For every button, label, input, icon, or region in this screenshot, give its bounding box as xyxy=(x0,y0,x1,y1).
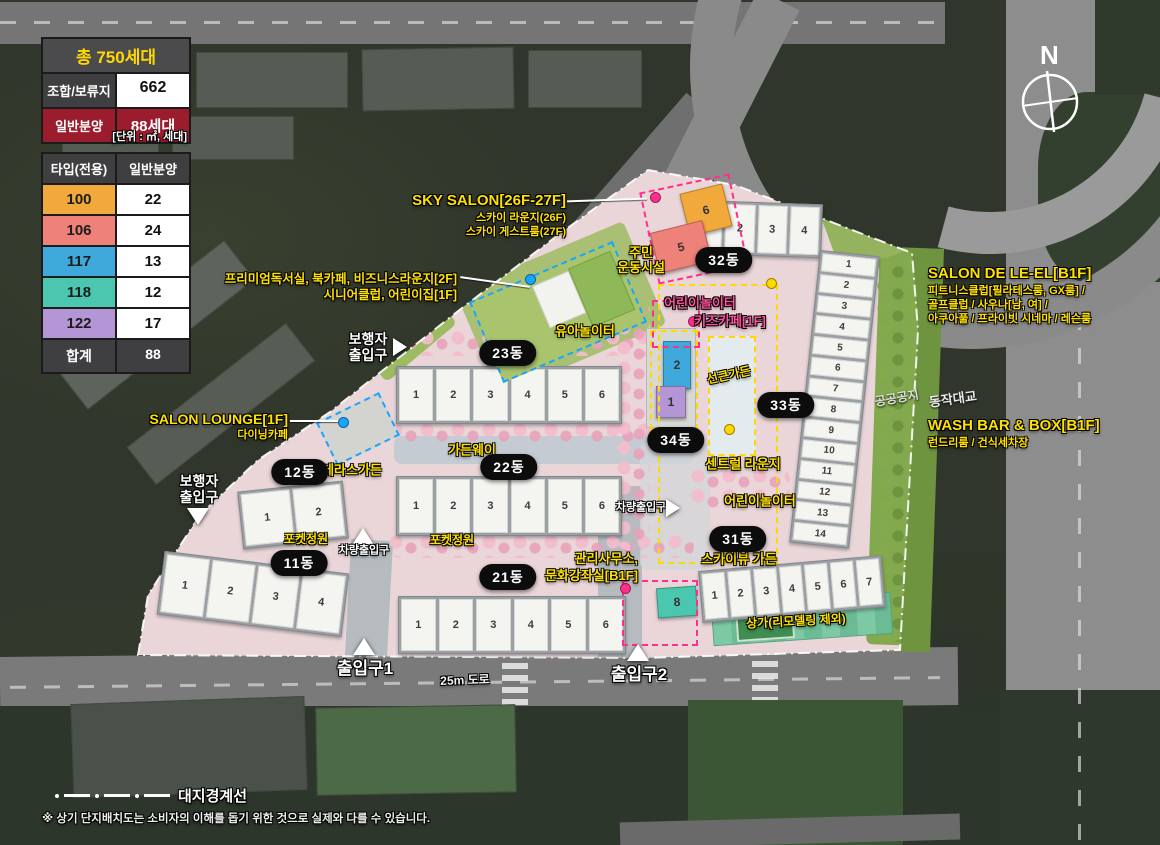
unit: 5 xyxy=(812,336,868,359)
bg-building xyxy=(315,704,517,795)
col-header: 타입(전용) xyxy=(43,154,115,183)
unit: 4 xyxy=(779,565,806,613)
callout-line: 런드리룸 / 건식세차장 xyxy=(928,436,1100,450)
unit: 2 xyxy=(436,369,470,421)
unit: 6 xyxy=(585,479,619,533)
unit: 5 xyxy=(548,479,582,533)
unit: 5 xyxy=(548,369,582,421)
pill-34: 34동 xyxy=(647,427,704,453)
entrance-arrow xyxy=(666,499,680,517)
unit: 6 xyxy=(589,599,624,651)
callout-line: 관리사무소, xyxy=(545,551,638,568)
type-table: 타입(전용) 일반분양 100 22 106 24 117 13 118 12 … xyxy=(41,152,191,374)
callout-salon-de-leel: SALON DE LE-EL[B1F] 피트니스클럽[필라테스룸, GX룸] /… xyxy=(928,264,1091,326)
label-skyview-garden: 스카이뷰 가든 xyxy=(701,553,776,568)
pill-23: 23동 xyxy=(479,340,536,366)
callout-premium: 프리미엄독서실, 북카페, 비즈니스라운지[2F] 시니어클럽, 어린이집[1F… xyxy=(225,271,457,304)
callout-line: 프리미엄독서실, 북카페, 비즈니스라운지[2F] xyxy=(225,271,457,287)
management-outline xyxy=(622,580,698,646)
callout-line: 시니어클럽, 어린이집[1F] xyxy=(225,287,457,303)
callout-title: SKY SALON[26F-27F] xyxy=(412,191,566,211)
col-header: 일반분양 xyxy=(117,154,189,183)
building-22: 1 2 3 4 5 6 xyxy=(396,476,622,536)
boundary-line-sample xyxy=(55,794,170,798)
unit: 3 xyxy=(473,479,507,533)
count-cell: 22 xyxy=(117,185,189,214)
crosswalk xyxy=(502,655,528,705)
unit: 4 xyxy=(789,206,820,255)
unit: 2 xyxy=(727,570,754,618)
unit: 2 xyxy=(206,560,255,623)
label-central-lounge: 센트럴 라운지 xyxy=(705,458,780,473)
unit: 6 xyxy=(810,357,866,380)
unit: 12 xyxy=(797,481,853,504)
unit: 4 xyxy=(514,599,549,651)
boundary-label: 대지경계선 xyxy=(178,785,247,806)
disclaimer-text: ※ 상기 단지배치도는 소비자의 이해를 돕기 위한 것으로 실제와 다를 수 … xyxy=(42,810,430,826)
unit: 3 xyxy=(816,295,872,318)
entrance-arrow xyxy=(627,644,649,661)
label-kids-cafe: 키즈카페[1F] xyxy=(694,315,766,330)
unit: 7 xyxy=(808,377,864,400)
unit: 4 xyxy=(511,479,545,533)
pill-11: 11동 xyxy=(271,550,328,576)
type-cell: 118 xyxy=(43,278,115,307)
callout-line: 아쿠아풀 / 프라이빗 시네마 / 레슨룸 xyxy=(928,312,1091,326)
marker-dot xyxy=(338,417,349,428)
pill-33: 33동 xyxy=(757,392,814,418)
callout-title: WASH BAR & BOX[B1F] xyxy=(928,416,1100,436)
pill-32: 32동 xyxy=(695,247,752,273)
entrance-pedestrian-1: 보행자 출입구 xyxy=(349,331,388,363)
count-cell: 17 xyxy=(117,309,189,338)
label-pocket-garden-2: 포켓정원 xyxy=(430,534,474,548)
callout-line: 골프클럽 / 사우나[남, 여] / xyxy=(928,298,1091,312)
right-road-lane xyxy=(1078,300,1081,840)
entrance-vehicle-1: 차량출입구 xyxy=(339,545,390,558)
type-cell: 117 xyxy=(43,247,115,276)
label-line: 출입구 xyxy=(180,489,219,505)
pill-22: 22동 xyxy=(480,454,537,480)
label-pocket-garden-1: 포켓정원 xyxy=(284,533,328,547)
label-line: 보행자 xyxy=(349,331,388,347)
callout-line: 다이닝카페 xyxy=(150,428,288,442)
unit: 1 xyxy=(821,253,877,276)
count-cell: 13 xyxy=(117,247,189,276)
unit: 1 xyxy=(399,369,433,421)
label-line: 보행자 xyxy=(180,473,219,489)
pill-21: 21동 xyxy=(479,564,536,590)
unit: 4 xyxy=(296,571,345,634)
unit: 14 xyxy=(793,522,849,545)
bg-building xyxy=(361,47,514,112)
unit: 5 xyxy=(804,563,831,611)
unit: 3 xyxy=(476,599,511,651)
site-plan-map: 1 2 3 4 5 6 1 2 3 4 5 6 1 2 3 4 5 6 1 2 … xyxy=(0,0,1160,845)
marker-dot xyxy=(724,424,735,435)
label-25m-road: 25m 도로 xyxy=(440,673,490,689)
entrance-arrow xyxy=(187,508,209,525)
row-value: 662 xyxy=(117,74,189,107)
marker-dot xyxy=(766,278,777,289)
label-kids-playground-pink: 어린이놀이터 xyxy=(664,297,736,312)
unit: 2 xyxy=(819,274,875,297)
label-line: 주민 xyxy=(629,245,653,260)
compass-north-icon: N xyxy=(1008,40,1092,140)
marker-dot xyxy=(650,192,661,203)
label-terrace-garden: 테라스가든 xyxy=(322,464,382,479)
unit: 3 xyxy=(757,205,788,254)
crosswalk xyxy=(752,653,778,703)
bg-building xyxy=(528,50,642,108)
type-cell: 122 xyxy=(43,309,115,338)
row-label: 조합/보류지 xyxy=(43,74,115,107)
unit: 2 xyxy=(439,599,474,651)
unit: 1 xyxy=(401,599,436,651)
callout-line: 피트니스클럽[필라테스룸, GX룸] / xyxy=(928,284,1091,298)
marker-dot xyxy=(525,274,536,285)
entrance-gate-1: 출입구1 xyxy=(337,659,393,679)
callout-line: 스카이 게스트룸(27F) xyxy=(412,225,566,239)
boundary-legend: 대지경계선 xyxy=(55,785,247,806)
building-21: 1 2 3 4 5 6 xyxy=(398,596,626,654)
total-label: 합계 xyxy=(43,340,115,372)
entrance-pedestrian-2: 보행자 출입구 xyxy=(180,473,219,505)
unit: 1 xyxy=(701,572,728,620)
unit: 1 xyxy=(160,554,209,617)
leader-line xyxy=(290,420,338,422)
callout-management: 관리사무소, 문화강좌실[B1F] xyxy=(545,551,638,585)
unit: 6 xyxy=(585,369,619,421)
pill-12: 12동 xyxy=(271,459,328,485)
callout-line: 스카이 라운지(26F) xyxy=(412,211,566,225)
callout-wash-bar: WASH BAR & BOX[B1F] 런드리룸 / 건식세차장 xyxy=(928,416,1100,450)
unit: 9 xyxy=(803,419,859,442)
callout-salon-lounge: SALON LOUNGE[1F] 다이닝카페 xyxy=(150,410,288,442)
compass-n: N xyxy=(1040,40,1059,70)
label-toddler-playground: 유아놀이터 xyxy=(555,325,615,340)
unit: 6 xyxy=(830,561,857,609)
label-line: 운동시설 xyxy=(617,260,665,275)
unit: 5 xyxy=(551,599,586,651)
entrance-arrow xyxy=(352,528,374,545)
unit: 2 xyxy=(436,479,470,533)
label-kids-playground-yellow: 어린이놀이터 xyxy=(724,495,796,510)
type-cell: 106 xyxy=(43,216,115,245)
unit: 1 xyxy=(399,479,433,533)
count-cell: 24 xyxy=(117,216,189,245)
count-cell: 12 xyxy=(117,278,189,307)
bg-building xyxy=(196,52,348,108)
entrance-arrow xyxy=(353,638,375,655)
total-count: 88 xyxy=(117,340,189,372)
label-line: 출입구 xyxy=(349,347,388,363)
callout-title: SALON DE LE-EL[B1F] xyxy=(928,264,1091,284)
unit-note: [단위 : ㎡, 세대] xyxy=(41,128,187,144)
total-households: 총 750세대 xyxy=(43,39,189,72)
entrance-vehicle-2: 차량출입구 xyxy=(616,502,667,515)
type-cell: 100 xyxy=(43,185,115,214)
callout-sky-salon: SKY SALON[26F-27F] 스카이 라운지(26F) 스카이 게스트룸… xyxy=(412,191,566,239)
unit: 4 xyxy=(814,315,870,338)
callout-line: 문화강좌실[B1F] xyxy=(545,568,638,585)
pill-31: 31동 xyxy=(709,526,766,552)
callout-title: SALON LOUNGE[1F] xyxy=(150,410,288,428)
bg-building xyxy=(70,696,307,798)
entrance-arrow xyxy=(393,338,407,356)
unit: 13 xyxy=(795,501,851,524)
label-residents-sports: 주민 운동시설 xyxy=(617,246,665,276)
unit: 3 xyxy=(753,567,780,615)
unit: 11 xyxy=(799,460,855,483)
unit: 7 xyxy=(856,558,883,606)
unit: 10 xyxy=(801,439,857,462)
entrance-gate-2: 출입구2 xyxy=(611,665,667,685)
